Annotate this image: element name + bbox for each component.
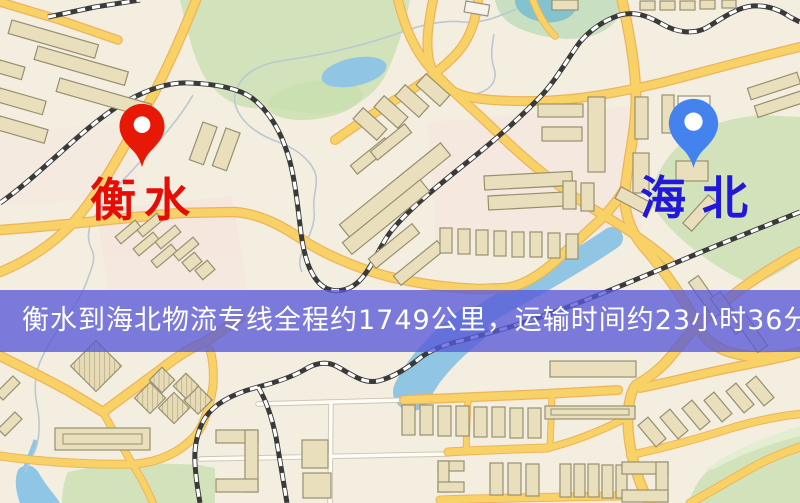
destination-marker[interactable]: [665, 97, 722, 170]
origin-marker[interactable]: [117, 101, 167, 170]
blue-pin-icon: [665, 97, 722, 170]
destination-label: 海北: [640, 175, 764, 221]
logistics-route-map: 衡水 海北 衡水到海北物流专线全程约1749公里，运输时间约23小时36分钟.: [0, 0, 800, 503]
map-background: [0, 0, 800, 503]
origin-label: 衡水: [90, 177, 198, 223]
route-info-text: 衡水到海北物流专线全程约1749公里，运输时间约23小时36分钟.: [22, 305, 800, 336]
route-info-banner: 衡水到海北物流专线全程约1749公里，运输时间约23小时36分钟.: [0, 290, 800, 352]
red-pin-icon: [117, 101, 167, 170]
